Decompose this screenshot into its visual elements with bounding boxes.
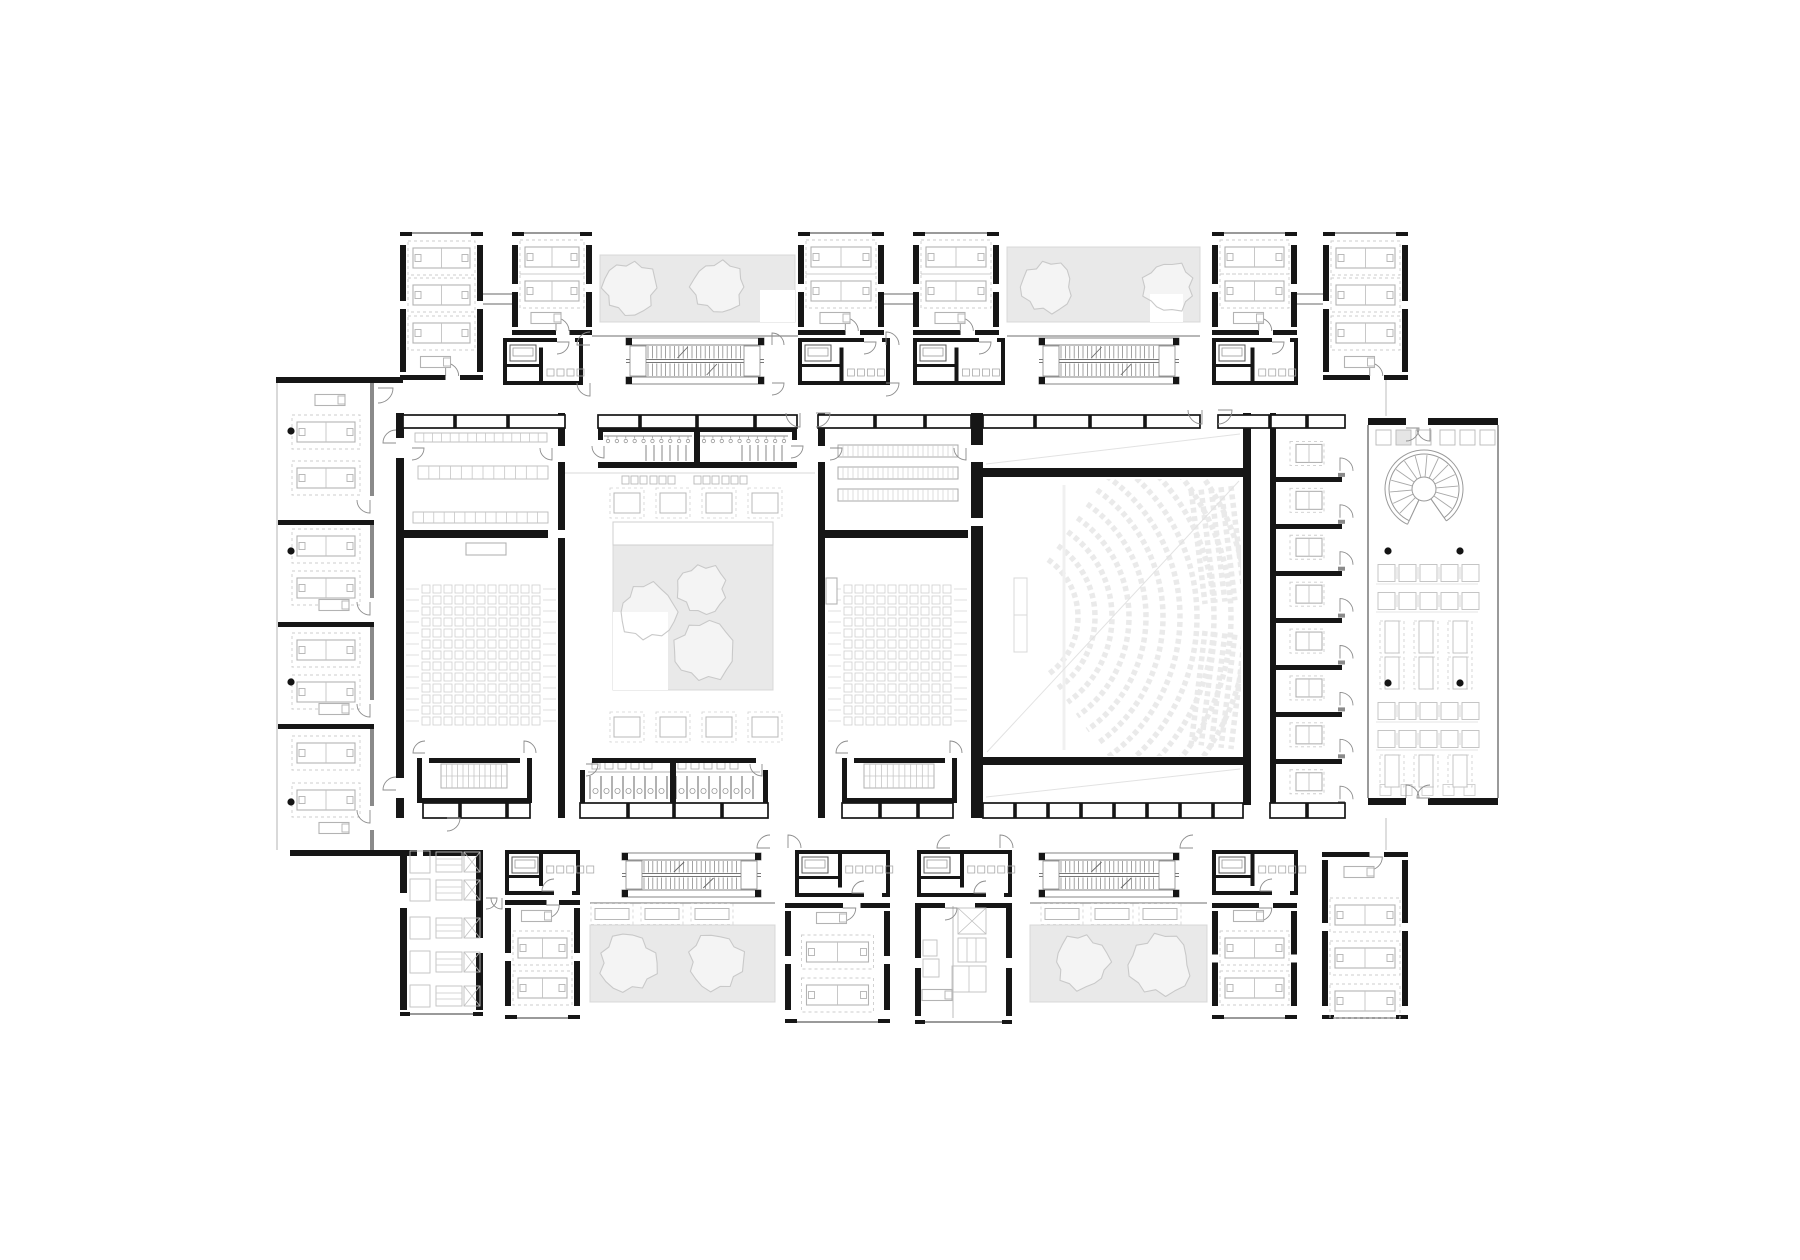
classroom-module-top-6	[1323, 232, 1408, 380]
classroom-module-bottom-3	[785, 903, 890, 1023]
main-auditorium	[986, 420, 1248, 813]
floor-plan-drawing	[0, 0, 1800, 1260]
classroom-module-bottom-2	[505, 900, 580, 1019]
study-cubicle-column	[1290, 441, 1353, 805]
classroom-module-top-3	[798, 232, 884, 335]
library-reading-wing	[1368, 425, 1498, 798]
classroom-module-bottom-6	[1322, 852, 1408, 1019]
classroom-modules	[400, 232, 1408, 1023]
classroom-module-top-2	[512, 232, 592, 335]
floor-plan-page	[0, 0, 1800, 1260]
classroom-module-top-4	[913, 232, 999, 335]
structural-columns	[287, 427, 1463, 805]
classroom-module-bottom-5	[1212, 903, 1297, 1019]
courtyards-with-trees	[590, 247, 1207, 1002]
left-office-wing	[292, 383, 374, 850]
classroom-module-top-5	[1212, 232, 1297, 335]
front-stage-rooms	[441, 764, 934, 788]
storage-rack-room	[400, 850, 483, 1016]
workshop-lab-room	[915, 903, 1012, 1024]
classroom-module-top-1	[400, 232, 483, 380]
